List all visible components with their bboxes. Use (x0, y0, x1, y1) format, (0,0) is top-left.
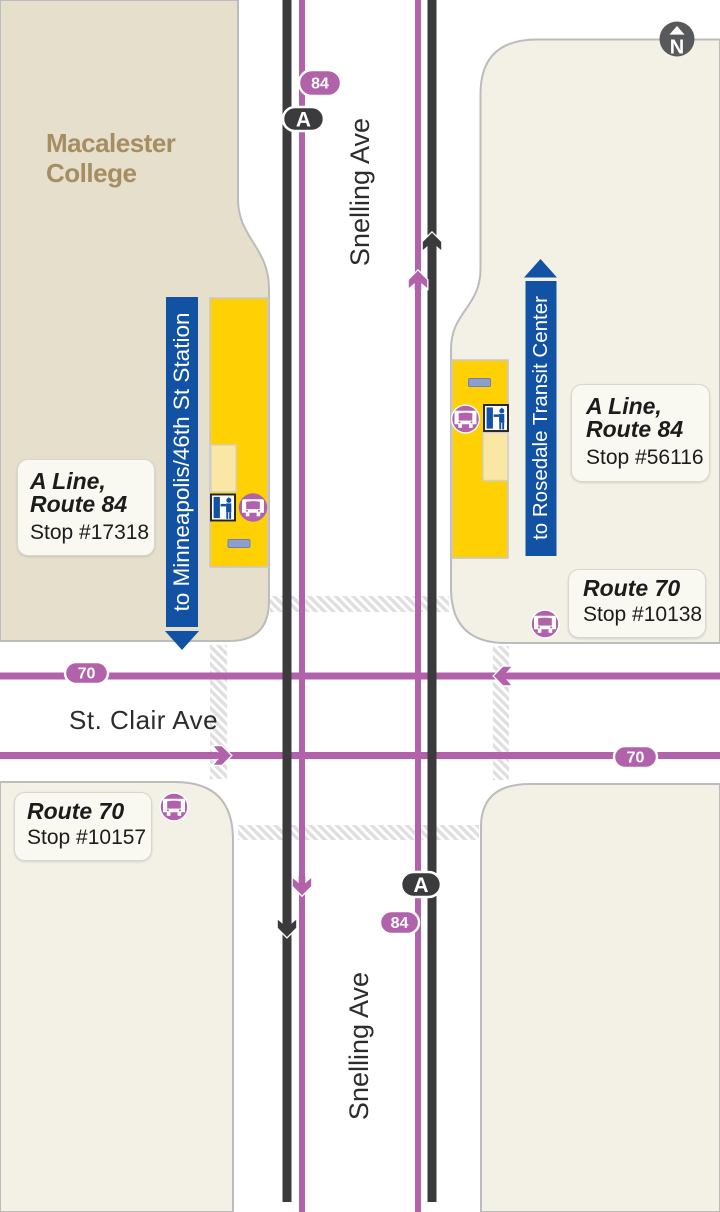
svg-text:70: 70 (627, 750, 645, 767)
svg-text:N: N (670, 37, 684, 59)
svg-text:A: A (413, 874, 428, 897)
svg-text:to Minneapolis/46th St Station: to Minneapolis/46th St Station (169, 313, 194, 612)
svg-text:to Rosedale Transit Center: to Rosedale Transit Center (529, 296, 552, 540)
svg-text:A: A (296, 109, 311, 132)
svg-text:84: 84 (311, 76, 329, 93)
svg-text:70: 70 (78, 666, 96, 683)
svg-text:Snelling Ave: Snelling Ave (344, 972, 374, 1120)
svg-text:Snelling Ave: Snelling Ave (345, 118, 375, 266)
svg-text:St. Clair Ave: St. Clair Ave (69, 705, 218, 735)
svg-text:College: College (46, 158, 136, 188)
svg-text:84: 84 (391, 915, 409, 932)
svg-text:Macalester: Macalester (46, 128, 176, 158)
